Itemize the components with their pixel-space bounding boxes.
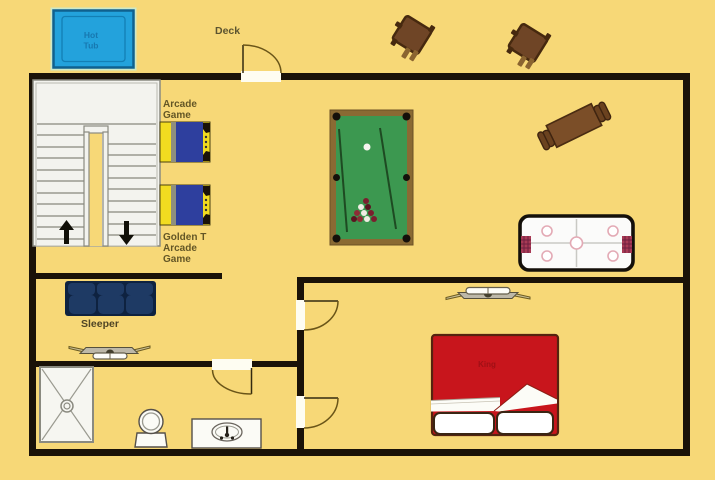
svg-text:Sleeper: Sleeper: [81, 318, 119, 330]
svg-text:Arcade: Arcade: [163, 99, 197, 110]
svg-text:Tub: Tub: [84, 41, 99, 51]
svg-text:Hot: Hot: [84, 30, 98, 40]
svg-text:Deck: Deck: [215, 25, 240, 37]
svg-text:Arcade: Arcade: [163, 243, 197, 254]
svg-text:Game: Game: [163, 254, 191, 265]
svg-text:Game: Game: [163, 110, 191, 121]
svg-text:King: King: [478, 360, 496, 369]
svg-text:Golden T: Golden T: [163, 232, 206, 243]
